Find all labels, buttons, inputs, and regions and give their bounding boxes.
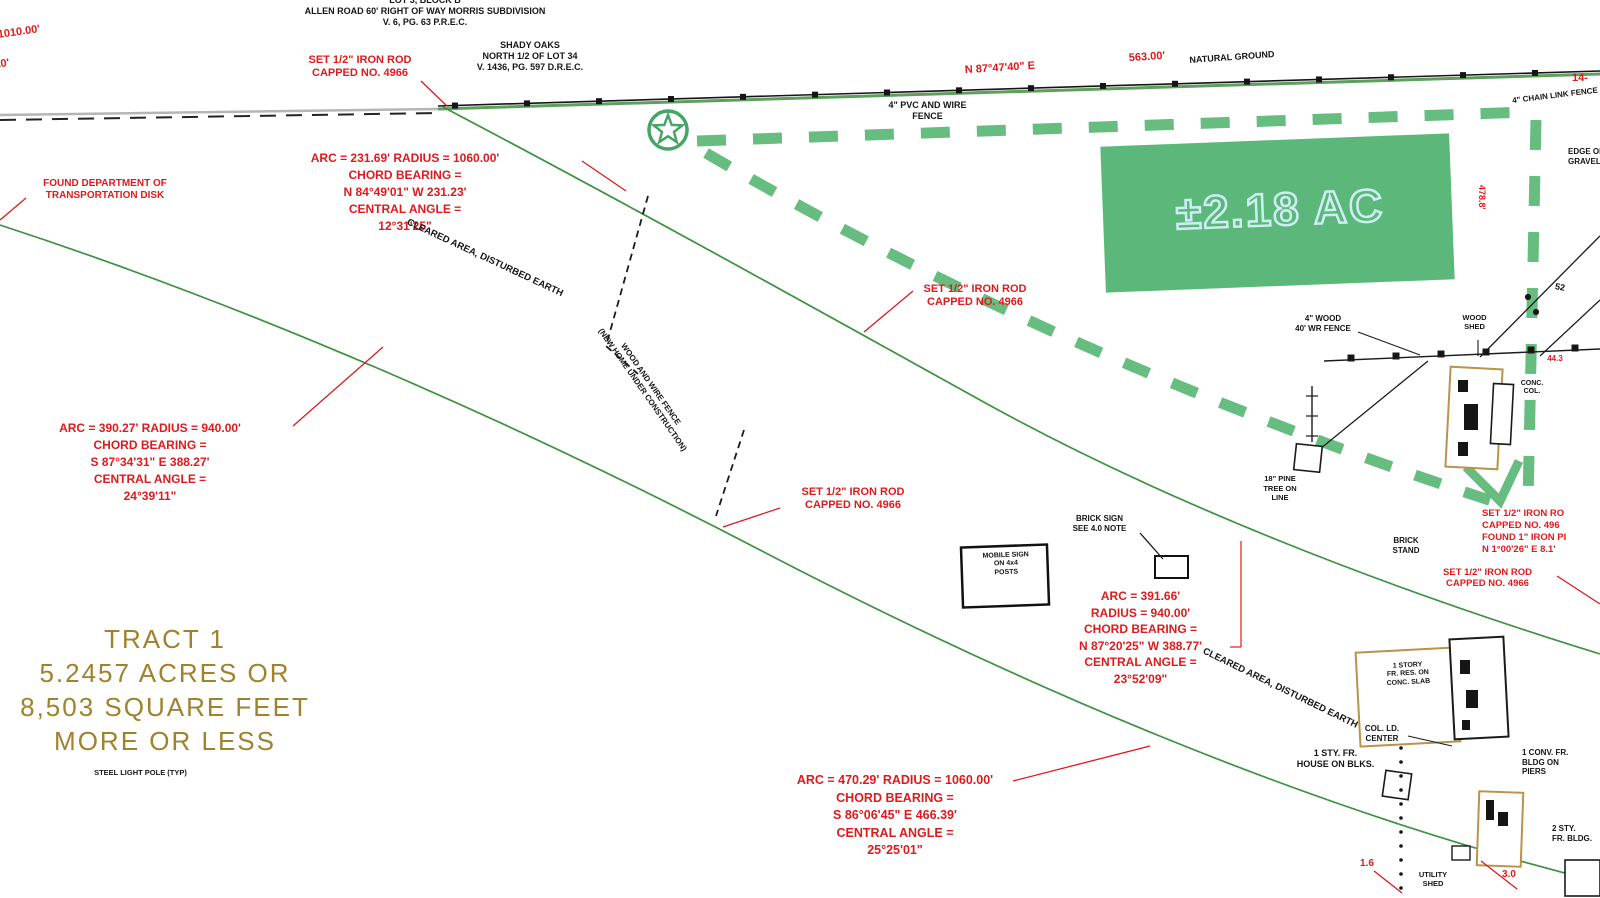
star-monument-icon xyxy=(649,111,687,149)
edge-iron-rod-notes: SET 1/2" IRON RO CAPPED NO. 496 FOUND 1"… xyxy=(1482,508,1600,556)
wood-shed-label: WOOD SHED xyxy=(1452,313,1497,331)
brick-stand-label: BRICK STAND xyxy=(1382,536,1430,555)
light-pole-note: STEEL LIGHT POLE (TYP) xyxy=(58,768,223,777)
subdivision-note-north: LOT 3, BLOCK B ALLEN ROAD 60' RIGHT OF W… xyxy=(270,0,580,28)
set-iron-rod-south-label: SET 1/2" IRON ROD CAPPED NO. 4966 xyxy=(788,486,918,512)
north-right-of-way-line xyxy=(0,70,1600,120)
curve-data-center: ARC = 391.66' RADIUS = 940.00' CHORD BEA… xyxy=(1048,588,1233,687)
concrete-column-label: CONC. COL. xyxy=(1512,380,1552,397)
survey-plat-canvas: LOT 3, BLOCK B ALLEN ROAD 60' RIGHT OF W… xyxy=(0,0,1600,898)
frame-house-label: 1 STY. FR. HOUSE ON BLKS. xyxy=(1288,748,1383,770)
residence-label: 1 STORY FR. RES. ON CONC. SLAB xyxy=(1367,660,1448,689)
subdivision-note-lot34: SHADY OAKS NORTH 1/2 OF LOT 34 V. 1436, … xyxy=(430,40,630,73)
conv-frame-bldg-label: 1 CONV. FR. BLDG ON PIERS xyxy=(1522,748,1600,777)
dimension-443-label: 44.3 xyxy=(1540,354,1570,364)
load-center-label: COL. LD. CENTER xyxy=(1352,724,1412,743)
wood-wire-fence-east-label: 4" WOOD 40' WR FENCE xyxy=(1278,314,1368,333)
found-dot-disk-label: FOUND DEPARTMENT OF TRANSPORTATION DISK xyxy=(15,178,195,202)
brick-sign-label: BRICK SIGN SEE 4.0 NOTE xyxy=(1052,514,1147,533)
tract-area-text: TRACT 1 5.2457 ACRES OR 8,503 SQUARE FEE… xyxy=(0,622,330,758)
mobile-sign-box-label: MOBILE SIGN ON 4x4 POSTS xyxy=(966,551,1047,579)
curve-data-west: ARC = 390.27' RADIUS = 940.00' CHORD BEA… xyxy=(0,420,300,505)
curve-data-south: ARC = 470.29' RADIUS = 1060.00' CHORD BE… xyxy=(680,772,1110,860)
edge-of-gravel-label: EDGE OF GRAVEL xyxy=(1568,147,1600,166)
utility-shed-label: UTILITY SHED xyxy=(1408,870,1458,888)
two-story-bldg-label: 2 STY. FR. BLDG. xyxy=(1552,824,1600,843)
vertical-distance-label: 478.8' xyxy=(1476,185,1487,210)
dotted-property-line xyxy=(1399,746,1403,890)
pvc-wire-fence-label: 4" PVC AND WIRE FENCE xyxy=(865,100,990,122)
dimension-partial-label: 14- xyxy=(1572,72,1600,85)
pine-tree-note: 18" PINE TREE ON LINE xyxy=(1245,474,1315,503)
set-iron-rod-mid-label: SET 1/2" IRON ROD CAPPED NO. 4966 xyxy=(905,283,1045,309)
dimension-30-label: 3.0 xyxy=(1494,869,1524,881)
set-iron-rod-north-label: SET 1/2" IRON ROD CAPPED NO. 4966 xyxy=(290,54,430,80)
edge-iron-rod-label-2: SET 1/2" IRON ROD CAPPED NO. 4966 xyxy=(1420,567,1555,590)
dimension-16-label: 1.6 xyxy=(1352,858,1382,870)
east-buildings xyxy=(1445,367,1513,470)
